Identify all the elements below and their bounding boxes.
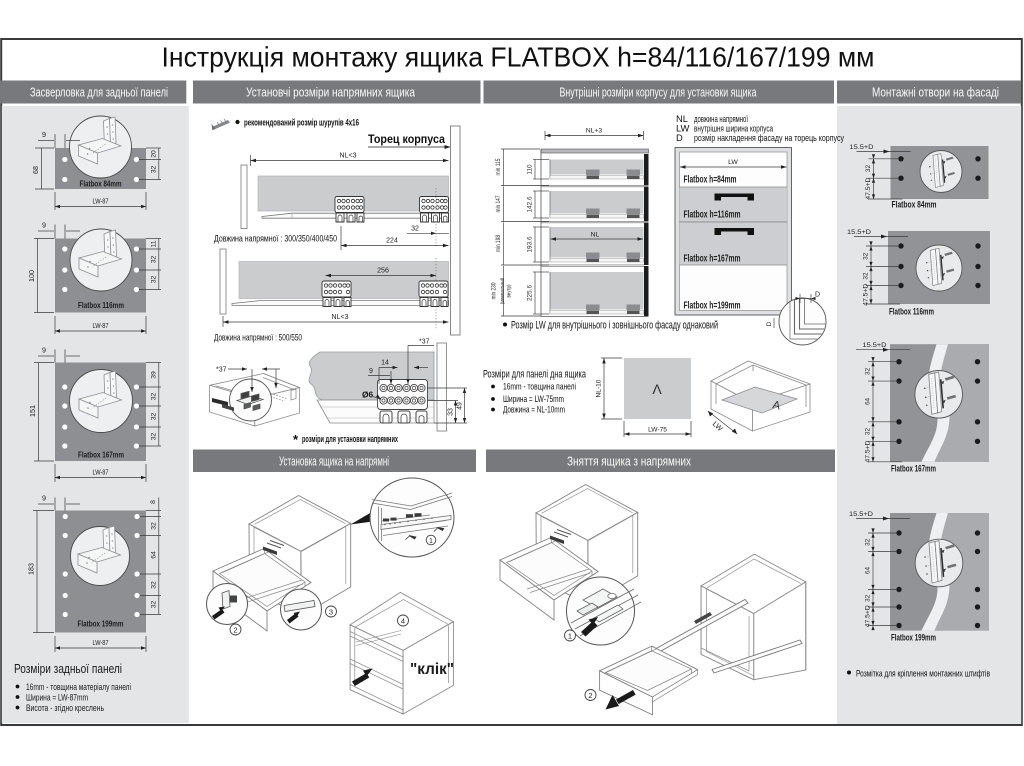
svg-text:15.5+D: 15.5+D bbox=[863, 342, 887, 349]
svg-text:32: 32 bbox=[150, 581, 157, 589]
svg-text:Flatbox h=199mm: Flatbox h=199mm bbox=[684, 301, 741, 312]
svg-text:225.6: 225.6 bbox=[527, 285, 534, 301]
svg-text:Монтажні отвори на фасаді: Монтажні отвори на фасаді bbox=[872, 86, 999, 100]
svg-text:NL<3: NL<3 bbox=[340, 153, 357, 160]
svg-text:Висота - згідно креслень: Висота - згідно креслень bbox=[26, 703, 104, 713]
svg-text:64: 64 bbox=[150, 551, 157, 559]
svg-text:32: 32 bbox=[150, 601, 157, 609]
svg-text:47.5+D: 47.5+D bbox=[865, 605, 872, 627]
svg-text:224: 224 bbox=[386, 238, 398, 245]
svg-text:4: 4 bbox=[401, 617, 405, 626]
svg-text:Flatbox 116mm: Flatbox 116mm bbox=[78, 301, 124, 310]
svg-text:Flatbox 84mm: Flatbox 84mm bbox=[892, 200, 937, 210]
svg-text:Flatbox 116mm: Flatbox 116mm bbox=[889, 307, 934, 317]
svg-text:15.5+D: 15.5+D bbox=[847, 229, 871, 236]
svg-text:47.5+D: 47.5+D bbox=[865, 177, 872, 199]
svg-text:розмір накладення фасаду на то: розмір накладення фасаду на торець корпу… bbox=[694, 132, 844, 143]
svg-text:Довжина напрямної : 300/350/4: Довжина напрямної : 300/350/400/450 bbox=[214, 234, 337, 245]
svg-text:32: 32 bbox=[865, 594, 872, 602]
svg-text:32: 32 bbox=[150, 166, 157, 174]
svg-text:32: 32 bbox=[150, 256, 157, 264]
svg-text:Flatbox h=167mm: Flatbox h=167mm bbox=[684, 254, 741, 265]
svg-text:110: 110 bbox=[527, 164, 534, 175]
svg-text:3: 3 bbox=[329, 608, 333, 617]
svg-text:Довжина напрямної : 500/550: Довжина напрямної : 500/550 bbox=[214, 333, 302, 344]
svg-text:2: 2 bbox=[588, 691, 592, 700]
svg-text:*37: *37 bbox=[419, 339, 430, 346]
svg-text:min 198: min 198 bbox=[495, 235, 502, 252]
svg-text:Розмітка для кріплення монтажн: Розмітка для кріплення монтажних штифтів bbox=[856, 669, 990, 679]
svg-text:min 147: min 147 bbox=[495, 195, 502, 212]
svg-text:100: 100 bbox=[27, 270, 36, 282]
svg-text:Внутрішні розміри корпусу для: Внутрішні розміри корпусу для установки … bbox=[560, 86, 757, 100]
svg-text:32: 32 bbox=[150, 413, 157, 421]
svg-text:LW-87: LW-87 bbox=[93, 321, 109, 330]
svg-text:LW-87: LW-87 bbox=[93, 468, 109, 477]
svg-text:Установка ящика на напрямні: Установка ящика на напрямні bbox=[279, 455, 389, 469]
svg-text:LW-87: LW-87 bbox=[93, 197, 109, 206]
svg-text:Розміри задньої панелі: Розміри задньої панелі bbox=[14, 662, 122, 676]
svg-text:16mm - товщина панелі: 16mm - товщина панелі bbox=[503, 381, 576, 392]
svg-text:20: 20 bbox=[150, 150, 157, 158]
svg-text:32: 32 bbox=[150, 522, 157, 530]
svg-text:Засверловка для задньої панелі: Засверловка для задньої панелі bbox=[30, 86, 168, 100]
svg-text:142.6: 142.6 bbox=[527, 196, 534, 212]
svg-text:*: * bbox=[293, 432, 299, 447]
svg-text:9: 9 bbox=[42, 346, 46, 355]
svg-text:64: 64 bbox=[865, 567, 872, 575]
svg-text:внутр): внутр) bbox=[507, 284, 513, 297]
svg-text:9: 9 bbox=[42, 130, 46, 139]
svg-text:33: 33 bbox=[448, 408, 455, 416]
svg-text:32: 32 bbox=[863, 272, 870, 280]
svg-text:Ширина = LW-87mm: Ширина = LW-87mm bbox=[26, 693, 88, 703]
svg-text:Зняття ящика з напрямних: Зняття ящика з напрямних bbox=[567, 455, 692, 469]
svg-text:"клік": "клік" bbox=[410, 661, 454, 678]
svg-text:2: 2 bbox=[233, 626, 237, 635]
svg-text:рекомендований розмір шурупів: рекомендований розмір шурупів 4x16 bbox=[244, 118, 359, 129]
svg-text:49: 49 bbox=[457, 402, 464, 410]
svg-text:47.5+D: 47.5+D bbox=[863, 283, 870, 305]
svg-text:14: 14 bbox=[381, 360, 389, 367]
svg-text:Flatbox 199mm: Flatbox 199mm bbox=[78, 620, 124, 629]
svg-text:68: 68 bbox=[31, 166, 40, 174]
svg-text:256: 256 bbox=[377, 268, 389, 275]
svg-text:15.5+D: 15.5+D bbox=[849, 511, 873, 518]
svg-text:183: 183 bbox=[27, 563, 36, 575]
svg-text:32: 32 bbox=[865, 428, 872, 436]
svg-text:1: 1 bbox=[568, 632, 572, 641]
svg-text:Ø6: Ø6 bbox=[362, 390, 374, 400]
svg-text:Розміри для панелі дна ящика: Розміри для панелі дна ящика bbox=[483, 369, 587, 381]
svg-text:NL-10: NL-10 bbox=[596, 379, 603, 397]
svg-text:Установчі розміри напрямних ящ: Установчі розміри напрямних ящика bbox=[246, 86, 415, 100]
svg-text:Довжина = NL-10mm: Довжина = NL-10mm bbox=[503, 404, 565, 415]
svg-text:min 230: min 230 bbox=[491, 282, 498, 299]
svg-text:NL+3: NL+3 bbox=[586, 128, 603, 135]
svg-text:1: 1 bbox=[429, 538, 433, 545]
svg-text:min 115: min 115 bbox=[495, 158, 502, 175]
svg-text:32: 32 bbox=[150, 276, 157, 284]
svg-text:9: 9 bbox=[42, 494, 46, 503]
svg-text:9: 9 bbox=[369, 368, 373, 375]
svg-text:Торец корпуса: Торец корпуса bbox=[368, 134, 446, 146]
svg-text:Ширина = LW-75mm: Ширина = LW-75mm bbox=[503, 393, 564, 404]
svg-text:15.5+D: 15.5+D bbox=[850, 144, 874, 151]
svg-text:9: 9 bbox=[42, 221, 46, 230]
svg-text:LW-87: LW-87 bbox=[93, 638, 109, 647]
svg-text:Flatbox 84mm: Flatbox 84mm bbox=[80, 180, 122, 189]
svg-text:Λ: Λ bbox=[652, 381, 662, 397]
svg-text:LW-75: LW-75 bbox=[648, 427, 667, 434]
svg-text:193.6: 193.6 bbox=[527, 236, 534, 252]
svg-text:32: 32 bbox=[150, 393, 157, 401]
svg-text:11: 11 bbox=[150, 240, 157, 247]
svg-text:Flatbox h=84mm: Flatbox h=84mm bbox=[684, 175, 737, 186]
svg-text:LW: LW bbox=[711, 419, 725, 433]
svg-text:32: 32 bbox=[863, 252, 870, 260]
svg-text:NL: NL bbox=[591, 232, 600, 239]
svg-text:16mm - товщина матеріалу панел: 16mm - товщина матеріалу панелі bbox=[26, 682, 131, 692]
svg-text:Flatbox 199mm: Flatbox 199mm bbox=[891, 633, 936, 643]
svg-text:*37: *37 bbox=[216, 367, 227, 374]
svg-text:39: 39 bbox=[150, 371, 157, 379]
svg-text:D: D bbox=[815, 292, 820, 299]
svg-text:Flatbox 167mm: Flatbox 167mm bbox=[891, 464, 936, 474]
svg-text:розміри для установки напрямни: розміри для установки напрямних bbox=[302, 434, 398, 445]
svg-text:8: 8 bbox=[150, 500, 157, 504]
svg-text:Інструкція монтажу ящика FLATB: Інструкція монтажу ящика FLATBOX h=84/11… bbox=[162, 42, 875, 73]
svg-text:32: 32 bbox=[865, 367, 872, 375]
svg-text:32: 32 bbox=[150, 433, 157, 441]
svg-text:32: 32 bbox=[865, 165, 872, 173]
svg-text:D: D bbox=[676, 132, 683, 143]
svg-text:NL<3: NL<3 bbox=[332, 314, 349, 321]
svg-text:47.5+D: 47.5+D bbox=[865, 440, 872, 462]
svg-text:151: 151 bbox=[28, 405, 37, 417]
svg-text:64: 64 bbox=[865, 397, 872, 405]
svg-text:Flatbox 167mm: Flatbox 167mm bbox=[78, 451, 124, 460]
svg-text:32: 32 bbox=[865, 538, 872, 546]
svg-text:D: D bbox=[766, 321, 773, 326]
svg-text:Flatbox h=116mm: Flatbox h=116mm bbox=[684, 210, 741, 221]
svg-text:(минимальный: (минимальный bbox=[499, 278, 506, 304]
svg-text:LW: LW bbox=[728, 159, 738, 166]
svg-text:32: 32 bbox=[411, 226, 419, 233]
svg-text:Розмір LW для внутрішнього і з: Розмір LW для внутрішнього і зовнішнього… bbox=[511, 320, 718, 332]
